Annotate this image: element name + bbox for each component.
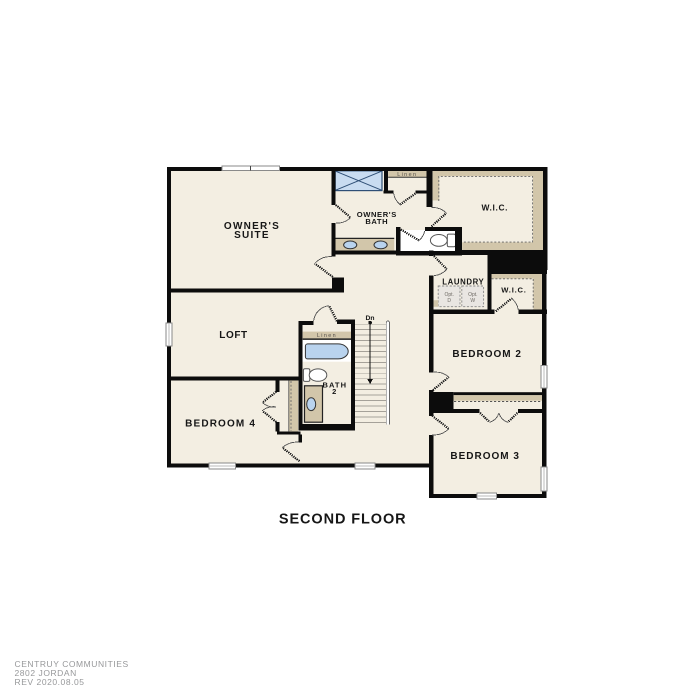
svg-text:Linen: Linen [397,172,417,178]
svg-text:BEDROOM 4: BEDROOM 4 [185,418,256,429]
svg-text:W.I.C.: W.I.C. [481,202,508,212]
svg-text:W.I.C.: W.I.C. [501,286,526,295]
svg-text:BEDROOM 3: BEDROOM 3 [450,451,520,462]
svg-text:Dn: Dn [365,315,374,322]
svg-text:W: W [470,298,475,304]
svg-text:2: 2 [332,387,337,396]
svg-text:REV 2020.08.05: REV 2020.08.05 [15,677,85,687]
svg-text:BATH: BATH [365,217,388,226]
svg-text:SECOND FLOOR: SECOND FLOOR [279,512,407,528]
svg-text:Linen: Linen [317,333,337,339]
svg-text:LOFT: LOFT [219,330,248,341]
svg-text:LAUNDRY: LAUNDRY [442,277,484,286]
svg-text:BEDROOM 2: BEDROOM 2 [452,349,522,360]
svg-text:SUITE: SUITE [234,230,270,241]
svg-text:D: D [447,298,451,304]
